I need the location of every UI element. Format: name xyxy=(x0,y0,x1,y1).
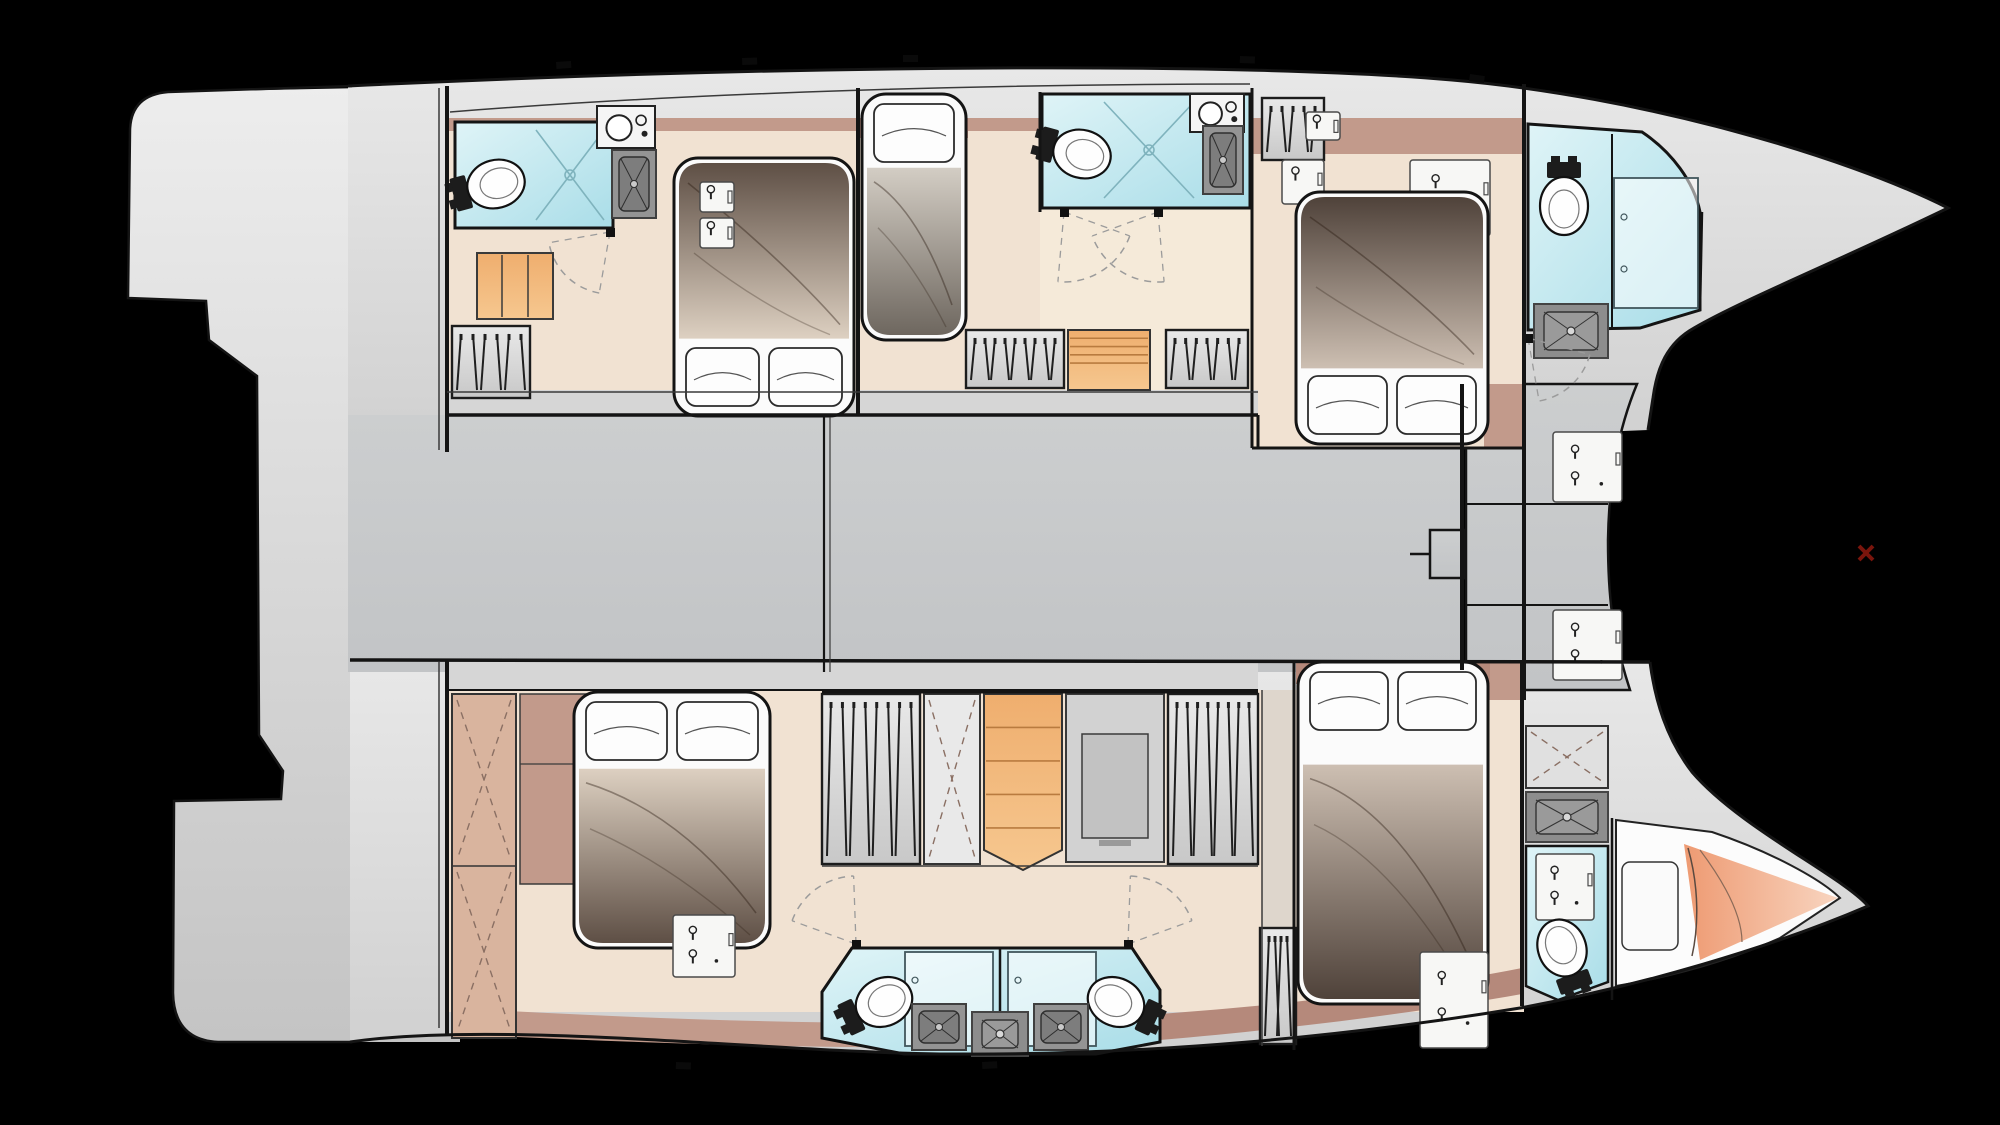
panel-face xyxy=(1536,854,1594,920)
catamaran-floorplan-canvas xyxy=(0,0,2000,1125)
fwd-bridge-brown-bottom xyxy=(1488,662,1522,700)
hanging-locker xyxy=(1168,694,1258,864)
pillow xyxy=(1398,672,1476,730)
toilet-cistern xyxy=(1547,162,1581,178)
vanity-mirror xyxy=(1082,734,1148,838)
sink-basin xyxy=(1199,102,1222,125)
cleat-mark xyxy=(1240,56,1255,64)
toilet-knob xyxy=(1551,156,1560,163)
sink-icon xyxy=(597,106,655,148)
unit-drain xyxy=(996,1030,1004,1038)
toilet-icon xyxy=(1540,156,1588,235)
nightstand xyxy=(1420,952,1488,1048)
shower-tray-icon xyxy=(912,1004,966,1050)
pillow xyxy=(686,348,759,406)
bridge-deck xyxy=(348,415,1462,672)
panel-face xyxy=(700,218,734,248)
pillow xyxy=(1308,376,1387,434)
glass-pane xyxy=(1614,178,1698,308)
panel-face xyxy=(1420,952,1488,1048)
stairs-outline xyxy=(984,694,1062,870)
door-post xyxy=(1154,208,1163,217)
locker-box xyxy=(452,326,530,398)
bridge-hatch-door xyxy=(1553,610,1622,680)
toilet-bowl xyxy=(1540,177,1588,235)
shower-tray-icon xyxy=(1203,126,1243,194)
pillow xyxy=(677,702,758,760)
cleat-mark xyxy=(982,1061,997,1069)
companionway-stairs xyxy=(1068,330,1150,390)
locker-box xyxy=(1168,694,1258,864)
tray-drain xyxy=(631,181,638,188)
blanket xyxy=(579,769,765,943)
companionway-stairs xyxy=(984,694,1062,870)
door-post xyxy=(852,940,861,949)
pillow xyxy=(1310,672,1388,730)
dresser-orange xyxy=(477,253,553,319)
shower-tray-icon xyxy=(1034,1004,1088,1050)
cleat-mark xyxy=(903,55,918,62)
pillow xyxy=(769,348,842,406)
cleat-mark xyxy=(742,57,757,65)
pillow xyxy=(586,702,667,760)
wardrobe-tall xyxy=(452,694,516,1038)
port-forward-double-bed xyxy=(1296,192,1488,444)
door-post xyxy=(1060,208,1069,217)
pillow xyxy=(874,104,954,162)
deck-hatch-icon xyxy=(1306,112,1340,140)
floorplan-drawing xyxy=(0,0,2000,1125)
panel-face xyxy=(673,915,735,977)
sink-basin xyxy=(606,115,631,140)
bathroom-door xyxy=(1536,854,1594,920)
deck-hatch-icon xyxy=(700,218,734,248)
pillow xyxy=(1397,376,1476,434)
panel-dot xyxy=(1600,482,1604,486)
twin-sink-unit xyxy=(972,1012,1028,1056)
tray-drain xyxy=(936,1024,943,1031)
panel-dot xyxy=(1575,901,1579,905)
sink-drain xyxy=(642,131,648,137)
tray-drain xyxy=(1058,1024,1065,1031)
deck-hatch-icon xyxy=(700,182,734,212)
panel-face xyxy=(700,182,734,212)
toilet-knob xyxy=(1568,156,1577,163)
inner-hull-edge-bottom xyxy=(350,660,1650,662)
blanket xyxy=(1301,197,1483,368)
shower-tray-icon xyxy=(612,150,656,218)
blanket xyxy=(867,168,961,335)
locker-box xyxy=(822,694,920,864)
hanging-locker xyxy=(966,330,1064,388)
forepeak-pillow xyxy=(1622,862,1678,950)
vanity-foot xyxy=(1099,840,1131,846)
nightstand xyxy=(673,915,735,977)
panel-dot xyxy=(715,959,719,963)
door-post xyxy=(606,228,615,237)
hanging-locker xyxy=(452,326,530,398)
cleat-mark xyxy=(556,61,571,69)
saloon-door-notch xyxy=(1430,530,1464,578)
panel-face xyxy=(1306,112,1340,140)
wardrobe xyxy=(924,694,980,864)
bottom-walkway-strip xyxy=(447,662,1258,690)
fwd-bridge-brown-top xyxy=(1484,384,1522,448)
sink-unit-dark xyxy=(1526,792,1608,842)
bridge-hatch-door xyxy=(1553,432,1622,502)
sink-drain xyxy=(1231,116,1237,122)
unit-drain xyxy=(1563,813,1571,821)
port-mid-single-bed xyxy=(862,94,966,340)
shower-compartment xyxy=(1526,726,1608,788)
hanging-locker xyxy=(1166,330,1248,388)
unit-drain xyxy=(1567,327,1575,335)
panel-face xyxy=(1553,610,1622,680)
hanging-locker xyxy=(1260,928,1296,1044)
cleat-mark xyxy=(676,1062,691,1070)
tray-drain xyxy=(1220,157,1227,164)
hanging-locker xyxy=(822,694,920,864)
starboard-aft-double-bed xyxy=(574,692,770,948)
panel-dot xyxy=(1466,1021,1470,1025)
panel-face xyxy=(1553,432,1622,502)
shower-cubicle-glass xyxy=(1614,178,1698,308)
door-post xyxy=(1124,940,1133,949)
